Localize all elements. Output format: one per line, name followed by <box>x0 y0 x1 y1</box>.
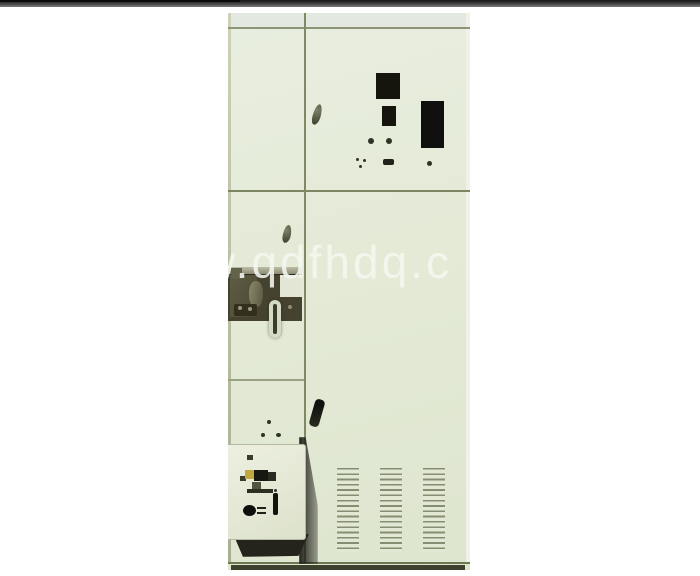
cabinet-bottom-line <box>228 562 470 564</box>
mechanism-screw <box>288 305 292 309</box>
cabinet-photo: w.qdfhdq.c <box>228 13 470 570</box>
screw-dot <box>267 420 271 424</box>
door-handle-bottom <box>308 398 325 428</box>
mechanism-bolt <box>238 306 242 310</box>
control-box-knob-line <box>257 507 266 509</box>
cabinet-top-strip <box>228 13 470 27</box>
cabinet-mid-frame-line <box>228 190 470 192</box>
vertical-handle-bar <box>273 304 277 334</box>
control-box-component <box>268 472 276 481</box>
control-box-knob <box>243 505 256 516</box>
cabinet-plinth <box>231 565 465 570</box>
left-door-bottom-line <box>228 379 304 381</box>
site-watermark: w.qdfhdq.c <box>228 235 452 289</box>
screw-dot <box>276 433 281 437</box>
top-border-edge <box>0 0 240 2</box>
vent-louver-column <box>337 468 359 552</box>
cabinet-top-frame-line <box>228 27 470 29</box>
screw-dot <box>261 433 265 437</box>
photo-right-margin <box>466 13 470 564</box>
vent-louver-column <box>423 468 445 552</box>
meter-cutout-small <box>382 106 396 126</box>
mechanism-bolt <box>248 307 252 311</box>
indicator-dot <box>386 138 392 144</box>
top-border-bar <box>0 0 700 7</box>
label-plate <box>383 159 394 165</box>
control-box <box>228 444 306 540</box>
control-box-slot <box>247 489 273 493</box>
screw-dot <box>356 158 359 161</box>
control-box-lever <box>273 493 278 515</box>
screw-dot <box>363 159 366 162</box>
control-box-label <box>247 455 253 460</box>
vent-louver-column <box>380 468 402 552</box>
control-box-dot <box>274 489 277 492</box>
meter-cutout-large <box>421 101 444 148</box>
vertical-handle <box>269 300 281 338</box>
control-box-switch-block <box>254 470 268 481</box>
screw-dot <box>359 165 362 168</box>
control-box-knob-line <box>257 512 266 514</box>
control-box-yellow-component <box>245 470 254 479</box>
control-box-component <box>252 482 261 489</box>
meter-cutout-square <box>376 73 400 99</box>
door-handle-top <box>311 103 324 125</box>
indicator-dot <box>427 161 432 166</box>
indicator-dot <box>368 138 374 144</box>
